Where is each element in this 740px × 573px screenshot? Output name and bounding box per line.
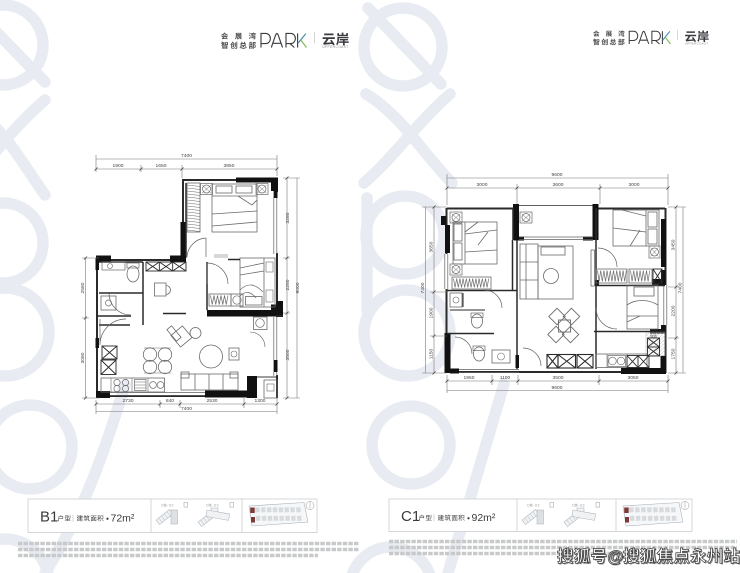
svg-text:3000: 3000: [629, 182, 640, 188]
svg-text:3050: 3050: [628, 375, 639, 381]
svg-text:3000: 3000: [477, 182, 488, 188]
svg-text:B1: B1: [40, 508, 58, 525]
svg-text:3650: 3650: [429, 241, 435, 252]
svg-text:9000: 9000: [295, 282, 301, 293]
svg-text:72m²: 72m²: [111, 512, 135, 524]
svg-text:1100: 1100: [500, 375, 511, 381]
svg-text:9600: 9600: [552, 385, 563, 391]
svg-text:C: C: [206, 504, 209, 508]
svg-text:2: 2: [538, 504, 540, 508]
svg-text:3280: 3280: [285, 212, 291, 223]
svg-text:840: 840: [166, 398, 174, 404]
svg-text:3080: 3080: [80, 352, 86, 363]
svg-text:C1: C1: [401, 508, 420, 525]
svg-text:3500: 3500: [285, 349, 291, 360]
svg-text:UPPERCOAST: UPPERCOAST: [685, 42, 709, 46]
svg-text:2200: 2200: [671, 305, 677, 316]
svg-text:7400: 7400: [420, 282, 426, 293]
svg-text:92m²: 92m²: [472, 512, 496, 524]
svg-text:1950: 1950: [464, 375, 475, 381]
svg-text:3600: 3600: [553, 182, 564, 188]
svg-text:1650: 1650: [156, 163, 167, 169]
svg-text:3: 3: [583, 504, 585, 508]
svg-text:C: C: [572, 504, 575, 508]
svg-text:2250: 2250: [285, 279, 291, 290]
svg-text:C: C: [161, 504, 164, 508]
svg-text:C: C: [527, 504, 530, 508]
svg-text:3: 3: [217, 504, 219, 508]
svg-text:3850: 3850: [224, 163, 235, 169]
svg-text:UPPERCOAST: UPPERCOAST: [322, 45, 349, 49]
svg-text:2580: 2580: [80, 282, 86, 293]
svg-text:7400: 7400: [181, 406, 192, 412]
svg-text:1750: 1750: [671, 348, 677, 359]
svg-text:3450: 3450: [671, 239, 677, 250]
svg-text:1300: 1300: [255, 398, 266, 404]
svg-text:1150: 1150: [429, 348, 435, 359]
svg-text:7400: 7400: [181, 153, 192, 159]
svg-text:2: 2: [172, 504, 174, 508]
svg-text:9600: 9600: [552, 172, 563, 178]
svg-text:1900: 1900: [113, 163, 124, 169]
svg-text:7400: 7400: [678, 282, 684, 293]
svg-text:2530: 2530: [207, 398, 218, 404]
svg-text:3500: 3500: [553, 375, 564, 381]
svg-text:@: @: [607, 547, 623, 566]
svg-text:2730: 2730: [123, 398, 134, 404]
svg-text:1900: 1900: [429, 307, 435, 318]
